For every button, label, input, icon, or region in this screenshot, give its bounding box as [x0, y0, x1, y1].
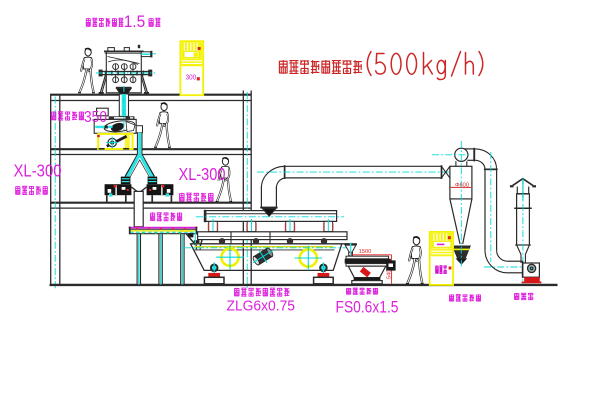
svg-text:540: 540	[387, 270, 393, 280]
svg-text:1500: 1500	[359, 249, 372, 255]
svg-text:ZLG6x0.75: ZLG6x0.75	[227, 298, 296, 315]
svg-text:FS0.6x1.5: FS0.6x1.5	[336, 298, 399, 316]
svg-text:300: 300	[186, 72, 197, 81]
svg-text:XL-300: XL-300	[14, 160, 62, 180]
svg-text:XL-300: XL-300	[179, 164, 226, 184]
svg-text:350: 350	[84, 109, 107, 126]
svg-text:Φ600: Φ600	[455, 183, 469, 189]
svg-text:1.5: 1.5	[124, 13, 146, 31]
